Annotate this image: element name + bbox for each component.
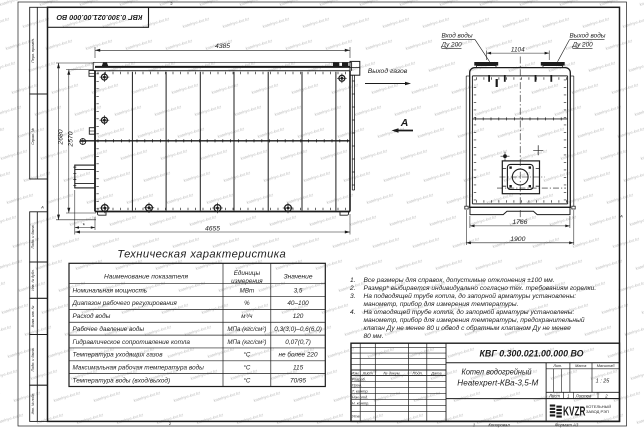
svg-text:Температура воды (вход/выход): Температура воды (вход/выход): [73, 376, 171, 384]
svg-text:3.: 3.: [350, 293, 356, 300]
svg-text:Температура уходящих газов: Температура уходящих газов: [73, 351, 164, 359]
svg-text:измерения: измерения: [231, 278, 263, 285]
svg-text:Взам. инв. №: Взам. инв. №: [31, 305, 35, 327]
svg-text:2.: 2.: [349, 285, 356, 292]
svg-text:Наименование показателя: Наименование показателя: [104, 274, 189, 281]
svg-text:kotelnye-kvr.kz: kotelnye-kvr.kz: [639, 0, 644, 7]
svg-text:Справ. №: Справ. №: [31, 128, 35, 145]
svg-text:1.: 1.: [350, 277, 356, 284]
svg-text:Котел водогрейный: Котел водогрейный: [462, 367, 532, 377]
svg-text:Лист: Лист: [548, 393, 560, 398]
svg-text:Размер* выбирается индивидуаль: Размер* выбирается индивидуально согласн…: [364, 284, 597, 292]
svg-text:Формат А3: Формат А3: [555, 423, 579, 428]
svg-text:Единицы: Единицы: [234, 269, 261, 277]
svg-text:А: А: [40, 205, 44, 210]
svg-text:Копировал: Копировал: [488, 423, 510, 428]
svg-text:А: А: [400, 117, 409, 129]
svg-text:МПа (кгс/см²): МПа (кгс/см²): [227, 326, 266, 333]
svg-text:КВГ 0.300.021.00.000 ВО: КВГ 0.300.021.00.000 ВО: [480, 348, 584, 359]
svg-text:КВГ 0.300.021.00.000 ВО: КВГ 0.300.021.00.000 ВО: [56, 13, 142, 22]
svg-text:40–100: 40–100: [287, 300, 309, 307]
svg-text:Гидравлическое сопротивление к: Гидравлическое сопротивление котла: [73, 338, 191, 346]
svg-text:Изм.: Изм.: [351, 370, 359, 375]
svg-text:МПа (кгс/см²): МПа (кгс/см²): [227, 339, 266, 346]
svg-text:1900: 1900: [510, 236, 525, 243]
svg-text:4385: 4385: [215, 43, 230, 50]
svg-text:Диапазон рабочего регулировани: Диапазон рабочего регулирования: [72, 299, 178, 307]
svg-text:№ докум.: № докум.: [383, 370, 400, 375]
svg-text:Ду 200: Ду 200: [572, 42, 594, 49]
svg-text:3,5: 3,5: [294, 287, 303, 294]
svg-text:Вход воды: Вход воды: [442, 31, 473, 39]
svg-text:Лит.: Лит.: [552, 364, 562, 368]
svg-text:%: %: [244, 300, 250, 307]
svg-text:На отводящей трубе котла, до з: На отводящей трубе котла, до запорной ар…: [364, 308, 575, 316]
svg-text:На подводящей трубе котла, до: На подводящей трубе котла, до запорной а…: [364, 292, 577, 300]
svg-text:Лист: Лист: [362, 370, 374, 375]
svg-text:Инв. № подл.: Инв. № подл.: [31, 393, 35, 415]
svg-text:Н. контр.: Н. контр.: [352, 400, 370, 405]
svg-text:Выход газов: Выход газов: [368, 67, 408, 75]
svg-text:клапан Ду не менее 80 и обвод: клапан Ду не менее 80 и обвод с обратным…: [364, 324, 572, 332]
svg-text:Инв. № дубл.: Инв. № дубл.: [31, 269, 35, 291]
svg-text:KVZR: KVZR: [563, 405, 586, 419]
svg-text:Heatexpert-КВа-3,5-М: Heatexpert-КВа-3,5-М: [457, 378, 538, 388]
svg-text:Ду 200: Ду 200: [441, 42, 463, 49]
svg-text:МВт: МВт: [240, 287, 254, 294]
svg-text:Листов: Листов: [575, 393, 592, 398]
svg-text:Т. контр.: Т. контр.: [352, 388, 369, 393]
svg-text:не более 220: не более 220: [279, 351, 318, 359]
svg-text:Расход воды: Расход воды: [73, 312, 111, 320]
svg-text:1104: 1104: [511, 46, 525, 53]
svg-text:Масса: Масса: [575, 364, 586, 368]
svg-text:Утв.: Утв.: [352, 414, 361, 419]
svg-text:1 : 25: 1 : 25: [596, 379, 611, 385]
svg-text:манометр, прибор для измерения: манометр, прибор для измерения температу…: [364, 300, 519, 308]
svg-text:Выход воды: Выход воды: [570, 31, 606, 39]
svg-text:Максимальная рабочая температу: Максимальная рабочая температура воды: [73, 363, 205, 371]
svg-text:Масштаб: Масштаб: [597, 364, 616, 368]
svg-text:м³/ч: м³/ч: [241, 313, 253, 320]
svg-text:80 мм.: 80 мм.: [364, 333, 384, 340]
svg-text:0,3(3,0)–0,6(6,0): 0,3(3,0)–0,6(6,0): [274, 326, 322, 333]
svg-text:ЗАВОД РЭП: ЗАВОД РЭП: [586, 409, 609, 414]
svg-text:°С: °С: [243, 364, 250, 371]
svg-text:70/95: 70/95: [290, 377, 306, 384]
svg-text:2680: 2680: [58, 129, 65, 145]
svg-text:120: 120: [293, 313, 304, 320]
svg-text:2570: 2570: [68, 131, 75, 147]
svg-text:Номинальная мощность: Номинальная мощность: [73, 287, 148, 294]
svg-text:Разраб.: Разраб.: [352, 376, 366, 381]
svg-text:°С: °С: [243, 377, 250, 384]
svg-text:Подп. и дата: Подп. и дата: [31, 225, 35, 248]
svg-text:4.: 4.: [350, 309, 356, 316]
svg-text:Подп. и дата: Подп. и дата: [31, 348, 35, 371]
svg-text:Все размеры для справок, допус: Все размеры для справок, допустимые откл…: [364, 276, 555, 284]
svg-text:Нач.отд.: Нач.отд.: [352, 394, 368, 399]
svg-text:4655: 4655: [205, 225, 220, 232]
svg-text:Перв. примен.: Перв. примен.: [31, 38, 35, 63]
svg-text:115: 115: [293, 364, 304, 371]
svg-text:Дата: Дата: [430, 370, 442, 375]
svg-text:°С: °С: [243, 352, 250, 359]
svg-text:А: А: [619, 214, 623, 219]
svg-text:Значение: Значение: [284, 274, 313, 281]
svg-text:0,07(0,7): 0,07(0,7): [285, 339, 311, 346]
svg-text:1766: 1766: [512, 219, 527, 226]
svg-text:Подп.: Подп.: [413, 370, 423, 375]
svg-text:Пров.: Пров.: [352, 382, 362, 387]
svg-text:манометр, прибор для измерения: манометр, прибор для измерения температу…: [364, 316, 585, 324]
svg-text:Рабочее давление воды: Рабочее давление воды: [73, 325, 145, 333]
svg-text:Техническая характеристика: Техническая характеристика: [117, 249, 286, 261]
svg-text:КОТЕЛЬНЫЙ: КОТЕЛЬНЫЙ: [586, 404, 611, 409]
